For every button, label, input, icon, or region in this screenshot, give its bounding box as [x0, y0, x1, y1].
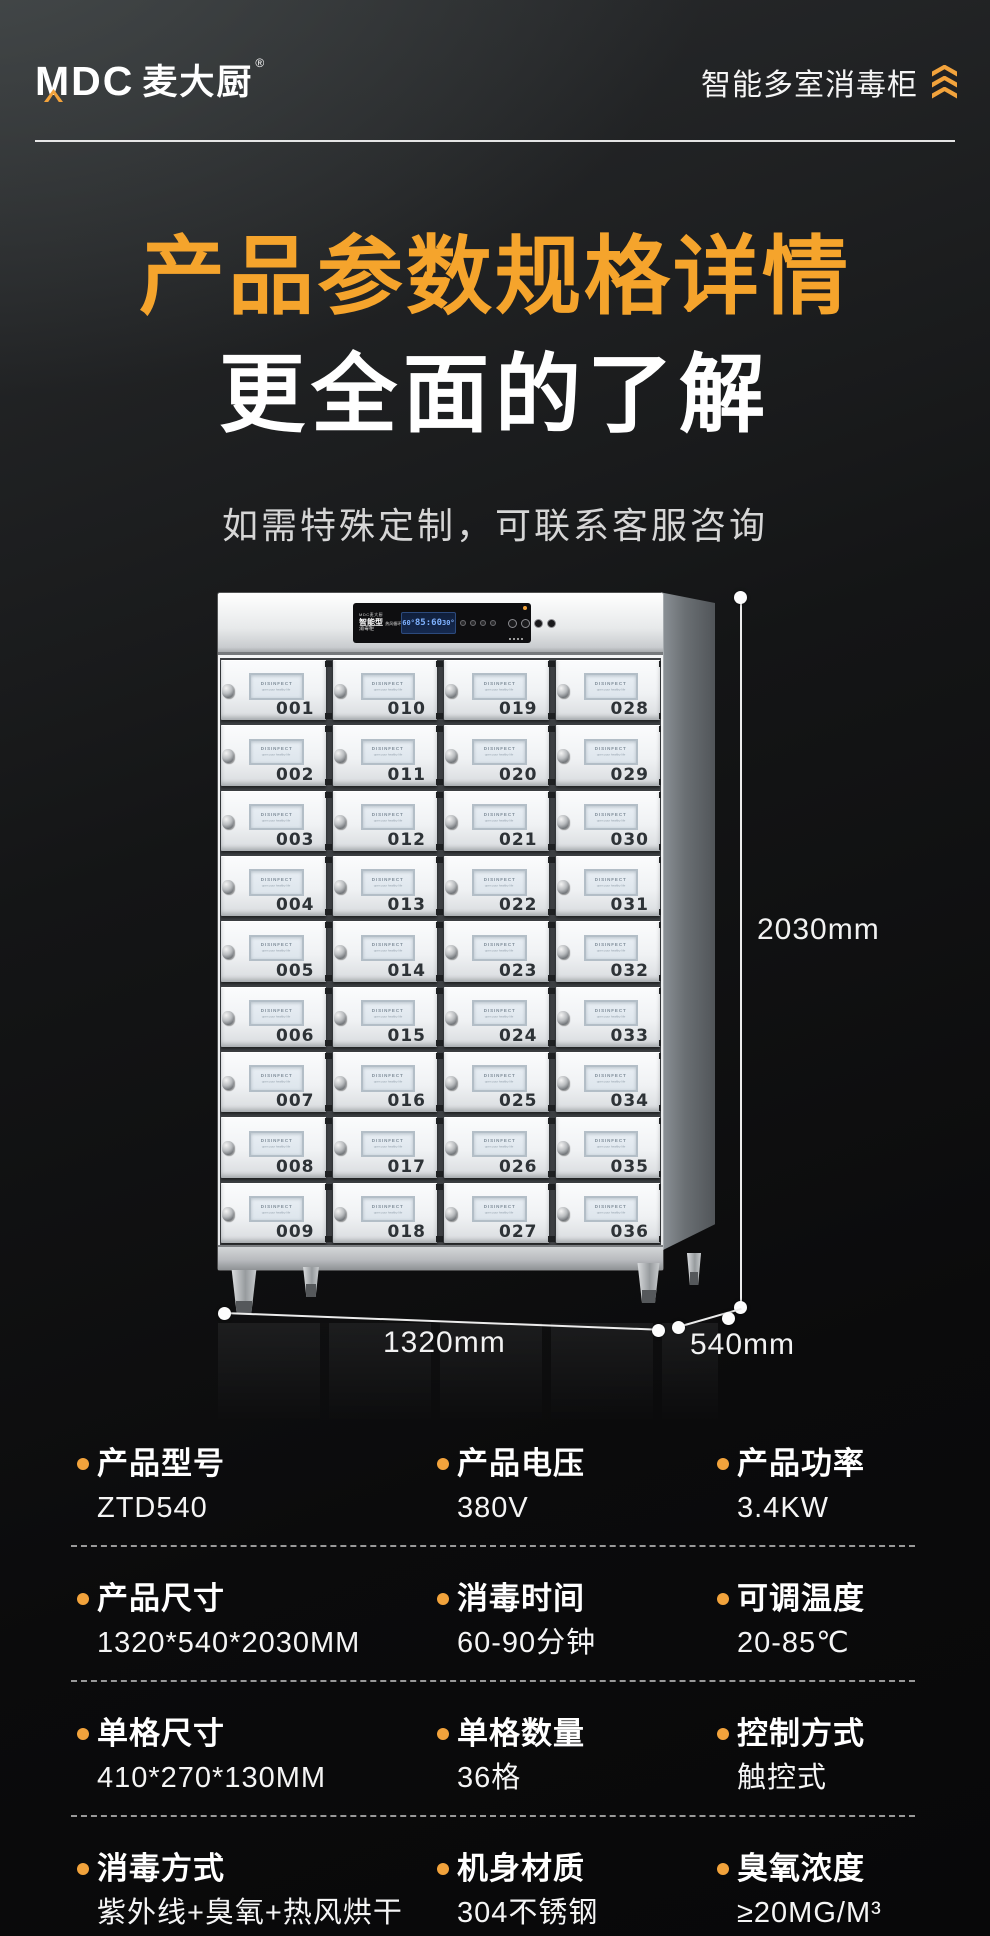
door-number: 032 — [611, 961, 650, 981]
cabinet-door-030: DISINFECTopen your healthy life030 — [556, 791, 661, 851]
door-number: 031 — [611, 895, 650, 915]
door-window: DISINFECTopen your healthy life — [361, 1065, 415, 1092]
spec-item: 产品尺寸1320*540*2030MM — [77, 1581, 437, 1659]
cabinet-door-028: DISINFECTopen your healthy life028 — [556, 660, 661, 720]
door-window: DISINFECTopen your healthy life — [249, 869, 303, 896]
spec-value: ≥20MG/M³ — [737, 1897, 990, 1929]
cabinet-leg — [230, 1270, 258, 1314]
spec-item: 可调温度20-85℃ — [717, 1581, 990, 1659]
width-dimension-label: 1320mm — [383, 1326, 506, 1360]
door-lock-icon — [222, 1141, 234, 1155]
bullet-icon — [437, 1728, 449, 1740]
door-window: DISINFECTopen your healthy life — [249, 673, 303, 700]
bullet-icon — [717, 1593, 729, 1605]
header-product-tag: 智能多室消毒柜 — [701, 60, 918, 104]
spec-value: 20-85℃ — [737, 1627, 990, 1659]
bullet-icon — [717, 1458, 729, 1470]
door-lock-icon — [222, 880, 234, 894]
door-number: 029 — [611, 765, 650, 785]
depth-dimension-label: 540mm — [690, 1328, 795, 1362]
spec-separator — [71, 1680, 915, 1682]
cabinet-door-031: DISINFECTopen your healthy life031 — [556, 856, 661, 916]
door-window: DISINFECTopen your healthy life — [584, 1065, 638, 1092]
bullet-icon — [77, 1863, 89, 1875]
panel-small-print — [509, 638, 525, 640]
door-number: 004 — [276, 895, 315, 915]
control-panel: MDC麦大厨 智能型 热风循环 消毒柜 60°85:6030° — [353, 603, 531, 643]
cabinet-door-036: DISINFECTopen your healthy life036 — [556, 1183, 661, 1243]
door-window: DISINFECTopen your healthy life — [472, 1196, 526, 1223]
spec-item: 产品型号ZTD540 — [77, 1446, 437, 1524]
spec-label: 产品功率 — [737, 1446, 865, 1482]
door-lock-icon — [334, 1141, 346, 1155]
door-lock-icon — [334, 749, 346, 763]
bullet-icon — [437, 1458, 449, 1470]
spec-value: 紫外线+臭氧+热风烘干 — [97, 1897, 437, 1929]
door-number: 016 — [388, 1091, 427, 1111]
door-lock-icon — [557, 1076, 569, 1090]
door-lock-icon — [557, 1011, 569, 1025]
door-window: DISINFECTopen your healthy life — [584, 804, 638, 831]
door-number: 033 — [611, 1026, 650, 1046]
spec-label: 消毒时间 — [457, 1581, 585, 1617]
bullet-icon — [437, 1593, 449, 1605]
cabinet-door-029: DISINFECTopen your healthy life029 — [556, 725, 661, 785]
control-panel-branding: MDC麦大厨 智能型 热风循环 消毒柜 — [359, 613, 401, 633]
spec-label: 单格尺寸 — [97, 1716, 225, 1752]
spec-item: 产品电压380V — [437, 1446, 717, 1524]
door-window: DISINFECTopen your healthy life — [361, 1196, 415, 1223]
door-lock-icon — [557, 1141, 569, 1155]
door-number: 035 — [611, 1157, 650, 1177]
spec-label: 产品型号 — [97, 1446, 225, 1482]
door-window: DISINFECTopen your healthy life — [361, 935, 415, 962]
cabinet-side-panel — [661, 583, 715, 1251]
cabinet-door-007: DISINFECTopen your healthy life007 — [221, 1052, 326, 1112]
door-lock-icon — [222, 749, 234, 763]
cabinet-door-008: DISINFECTopen your healthy life008 — [221, 1117, 326, 1177]
dimension-dot — [734, 591, 747, 604]
door-window: DISINFECTopen your healthy life — [472, 869, 526, 896]
door-window: DISINFECTopen your healthy life — [584, 1196, 638, 1223]
spec-row: 单格尺寸410*270*130MM单格数量36格控制方式触控式 — [0, 1716, 990, 1794]
door-number: 020 — [499, 765, 538, 785]
door-lock-icon — [334, 1207, 346, 1221]
door-number: 002 — [276, 765, 315, 785]
cabinet-door-017: DISINFECTopen your healthy life017 — [333, 1117, 438, 1177]
dimension-dot — [652, 1324, 665, 1337]
dimension-dot — [722, 1312, 735, 1325]
door-window: DISINFECTopen your healthy life — [249, 1196, 303, 1223]
cabinet-door-012: DISINFECTopen your healthy life012 — [333, 791, 438, 851]
door-lock-icon — [445, 1207, 457, 1221]
cabinet-door-018: DISINFECTopen your healthy life018 — [333, 1183, 438, 1243]
spec-value: 1320*540*2030MM — [97, 1627, 437, 1659]
door-number: 036 — [611, 1222, 650, 1242]
height-dimension-label: 2030mm — [757, 913, 880, 947]
cabinet-top-band: MDC麦大厨 智能型 热风循环 消毒柜 60°85:6030° — [218, 593, 663, 655]
door-lock-icon — [222, 684, 234, 698]
spec-item: 产品功率3.4KW — [717, 1446, 990, 1524]
door-window: DISINFECTopen your healthy life — [361, 869, 415, 896]
door-lock-icon — [557, 880, 569, 894]
door-number: 023 — [499, 961, 538, 981]
cabinet-door-021: DISINFECTopen your healthy life021 — [444, 791, 549, 851]
door-number: 001 — [276, 699, 315, 719]
power-indicator-icon — [523, 606, 527, 610]
door-number: 010 — [388, 699, 427, 719]
spec-item: 单格数量36格 — [437, 1716, 717, 1794]
cabinet-base — [218, 1245, 663, 1270]
door-window: DISINFECTopen your healthy life — [361, 1131, 415, 1158]
cabinet-leg — [302, 1267, 320, 1297]
door-lock-icon — [445, 1011, 457, 1025]
brand-logo-mdc: MDC — [35, 61, 134, 102]
door-window: DISINFECTopen your healthy life — [584, 935, 638, 962]
doors-grid: DISINFECTopen your healthy life001DISINF… — [220, 658, 661, 1245]
spec-value: 60-90分钟 — [457, 1627, 717, 1659]
door-window: DISINFECTopen your healthy life — [361, 1000, 415, 1027]
cabinet-leg — [686, 1253, 702, 1285]
door-number: 012 — [388, 830, 427, 850]
cabinet-door-011: DISINFECTopen your healthy life011 — [333, 725, 438, 785]
cabinet-leg — [636, 1263, 661, 1303]
cabinet-door-004: DISINFECTopen your healthy life004 — [221, 856, 326, 916]
spec-item: 控制方式触控式 — [717, 1716, 990, 1794]
door-lock-icon — [222, 1076, 234, 1090]
door-lock-icon — [334, 880, 346, 894]
door-number: 009 — [276, 1222, 315, 1242]
spec-value: 36格 — [457, 1762, 717, 1794]
cabinet-door-027: DISINFECTopen your healthy life027 — [444, 1183, 549, 1243]
spec-value: 410*270*130MM — [97, 1762, 437, 1794]
spec-row: 产品型号ZTD540产品电压380V产品功率3.4KW — [0, 1446, 990, 1524]
door-window: DISINFECTopen your healthy life — [361, 673, 415, 700]
door-window: DISINFECTopen your healthy life — [249, 739, 303, 766]
spec-item: 机身材质304不锈钢 — [437, 1851, 717, 1929]
spec-label: 可调温度 — [737, 1581, 865, 1617]
cabinet-door-003: DISINFECTopen your healthy life003 — [221, 791, 326, 851]
door-lock-icon — [334, 945, 346, 959]
door-window: DISINFECTopen your healthy life — [584, 739, 638, 766]
door-number: 018 — [388, 1222, 427, 1242]
product-image-cabinet: MDC麦大厨 智能型 热风循环 消毒柜 60°85:6030° DISINFEC… — [218, 583, 728, 1403]
bullet-icon — [77, 1593, 89, 1605]
lcd-display: 60°85:6030° — [401, 612, 455, 634]
double-chevron-up-icon — [932, 66, 957, 99]
dimension-dot — [672, 1321, 685, 1334]
spec-item: 消毒时间60-90分钟 — [437, 1581, 717, 1659]
page-subtitle: 如需特殊定制，可联系客服咨询 — [0, 497, 990, 549]
spec-value: 380V — [457, 1492, 717, 1524]
cabinet-door-016: DISINFECTopen your healthy life016 — [333, 1052, 438, 1112]
cabinet-door-009: DISINFECTopen your healthy life009 — [221, 1183, 326, 1243]
bullet-icon — [717, 1728, 729, 1740]
spec-item: 单格尺寸410*270*130MM — [77, 1716, 437, 1794]
door-lock-icon — [334, 1011, 346, 1025]
door-lock-icon — [222, 1207, 234, 1221]
control-panel-buttons — [460, 620, 500, 626]
door-window: DISINFECTopen your healthy life — [584, 869, 638, 896]
page-title-line2: 更全面的了解 — [0, 352, 990, 438]
spec-section: 产品型号ZTD540产品电压380V产品功率3.4KW产品尺寸1320*540*… — [0, 1446, 990, 1929]
door-number: 024 — [499, 1026, 538, 1046]
bullet-icon — [437, 1863, 449, 1875]
header-divider — [35, 140, 955, 142]
door-lock-icon — [445, 1141, 457, 1155]
door-number: 017 — [388, 1157, 427, 1177]
cabinet-door-005: DISINFECTopen your healthy life005 — [221, 921, 326, 981]
door-lock-icon — [557, 945, 569, 959]
spec-label: 臭氧浓度 — [737, 1851, 865, 1887]
spec-value: 3.4KW — [737, 1492, 990, 1524]
door-number: 034 — [611, 1091, 650, 1111]
cabinet-door-034: DISINFECTopen your healthy life034 — [556, 1052, 661, 1112]
header-product-tag-group: 智能多室消毒柜 — [701, 60, 957, 104]
registered-mark: ® — [255, 56, 264, 70]
door-window: DISINFECTopen your healthy life — [472, 1065, 526, 1092]
page-title-line1: 产品参数规格详情 — [0, 234, 990, 320]
door-lock-icon — [445, 880, 457, 894]
door-number: 013 — [388, 895, 427, 915]
door-window: DISINFECTopen your healthy life — [249, 935, 303, 962]
door-number: 003 — [276, 830, 315, 850]
cabinet-door-025: DISINFECTopen your healthy life025 — [444, 1052, 549, 1112]
door-lock-icon — [445, 684, 457, 698]
door-number: 019 — [499, 699, 538, 719]
door-lock-icon — [222, 945, 234, 959]
door-window: DISINFECTopen your healthy life — [472, 1000, 526, 1027]
cabinet-door-019: DISINFECTopen your healthy life019 — [444, 660, 549, 720]
brand-logo: MDC 麦大厨 ® — [35, 56, 264, 102]
door-number: 026 — [499, 1157, 538, 1177]
door-window: DISINFECTopen your healthy life — [472, 1131, 526, 1158]
spec-label: 单格数量 — [457, 1716, 585, 1752]
function-buttons — [504, 619, 556, 628]
cabinet-door-024: DISINFECTopen your healthy life024 — [444, 987, 549, 1047]
door-number: 022 — [499, 895, 538, 915]
door-number: 028 — [611, 699, 650, 719]
door-window: DISINFECTopen your healthy life — [584, 1000, 638, 1027]
door-lock-icon — [445, 749, 457, 763]
door-window: DISINFECTopen your healthy life — [249, 1131, 303, 1158]
door-number: 030 — [611, 830, 650, 850]
door-window: DISINFECTopen your healthy life — [249, 1065, 303, 1092]
door-number: 021 — [499, 830, 538, 850]
cabinet-door-014: DISINFECTopen your healthy life014 — [333, 921, 438, 981]
door-lock-icon — [557, 749, 569, 763]
door-lock-icon — [334, 1076, 346, 1090]
cabinet-door-023: DISINFECTopen your healthy life023 — [444, 921, 549, 981]
spec-separator — [71, 1545, 915, 1547]
spec-item: 消毒方式紫外线+臭氧+热风烘干 — [77, 1851, 437, 1929]
door-window: DISINFECTopen your healthy life — [472, 935, 526, 962]
door-number: 014 — [388, 961, 427, 981]
spec-item: 臭氧浓度≥20MG/M³ — [717, 1851, 990, 1929]
cabinet-door-022: DISINFECTopen your healthy life022 — [444, 856, 549, 916]
door-window: DISINFECTopen your healthy life — [584, 673, 638, 700]
door-window: DISINFECTopen your healthy life — [472, 739, 526, 766]
door-lock-icon — [334, 684, 346, 698]
spec-value: ZTD540 — [97, 1492, 437, 1524]
door-lock-icon — [557, 1207, 569, 1221]
spec-label: 产品电压 — [457, 1446, 585, 1482]
spec-value: 触控式 — [737, 1762, 990, 1794]
brand-logo-cn: 麦大厨 — [142, 65, 253, 102]
cabinet-front: MDC麦大厨 智能型 热风循环 消毒柜 60°85:6030° DISINFEC… — [218, 593, 663, 1270]
cabinet-door-032: DISINFECTopen your healthy life032 — [556, 921, 661, 981]
cabinet-door-010: DISINFECTopen your healthy life010 — [333, 660, 438, 720]
spec-label: 产品尺寸 — [97, 1581, 225, 1617]
cabinet-door-001: DISINFECTopen your healthy life001 — [221, 660, 326, 720]
door-window: DISINFECTopen your healthy life — [361, 739, 415, 766]
door-lock-icon — [222, 1011, 234, 1025]
cabinet-door-020: DISINFECTopen your healthy life020 — [444, 725, 549, 785]
bullet-icon — [77, 1458, 89, 1470]
height-dimension-line — [740, 597, 742, 1307]
door-lock-icon — [445, 1076, 457, 1090]
door-window: DISINFECTopen your healthy life — [584, 1131, 638, 1158]
door-lock-icon — [445, 945, 457, 959]
door-lock-icon — [445, 815, 457, 829]
spec-row: 产品尺寸1320*540*2030MM消毒时间60-90分钟可调温度20-85℃ — [0, 1581, 990, 1659]
cabinet-door-006: DISINFECTopen your healthy life006 — [221, 987, 326, 1047]
door-number: 015 — [388, 1026, 427, 1046]
door-number: 025 — [499, 1091, 538, 1111]
cabinet-door-002: DISINFECTopen your healthy life002 — [221, 725, 326, 785]
dimension-dot — [218, 1307, 231, 1320]
cabinet-door-035: DISINFECTopen your healthy life035 — [556, 1117, 661, 1177]
door-number: 008 — [276, 1157, 315, 1177]
spec-value: 304不锈钢 — [457, 1897, 717, 1929]
door-window: DISINFECTopen your healthy life — [472, 804, 526, 831]
cabinet-door-015: DISINFECTopen your healthy life015 — [333, 987, 438, 1047]
door-lock-icon — [557, 815, 569, 829]
bullet-icon — [77, 1728, 89, 1740]
door-window: DISINFECTopen your healthy life — [361, 804, 415, 831]
door-window: DISINFECTopen your healthy life — [472, 673, 526, 700]
cabinet-door-026: DISINFECTopen your healthy life026 — [444, 1117, 549, 1177]
door-lock-icon — [334, 815, 346, 829]
door-lock-icon — [222, 815, 234, 829]
spec-label: 消毒方式 — [97, 1851, 225, 1887]
spec-separator — [71, 1815, 915, 1817]
cabinet-door-013: DISINFECTopen your healthy life013 — [333, 856, 438, 916]
door-number: 007 — [276, 1091, 315, 1111]
spec-row: 消毒方式紫外线+臭氧+热风烘干机身材质304不锈钢臭氧浓度≥20MG/M³ — [0, 1851, 990, 1929]
spec-label: 机身材质 — [457, 1851, 585, 1887]
door-number: 027 — [499, 1222, 538, 1242]
spec-label: 控制方式 — [737, 1716, 865, 1752]
door-window: DISINFECTopen your healthy life — [249, 804, 303, 831]
bullet-icon — [717, 1863, 729, 1875]
door-number: 011 — [388, 765, 427, 785]
door-number: 006 — [276, 1026, 315, 1046]
cabinet-door-033: DISINFECTopen your healthy life033 — [556, 987, 661, 1047]
door-window: DISINFECTopen your healthy life — [249, 1000, 303, 1027]
door-number: 005 — [276, 961, 315, 981]
door-lock-icon — [557, 684, 569, 698]
